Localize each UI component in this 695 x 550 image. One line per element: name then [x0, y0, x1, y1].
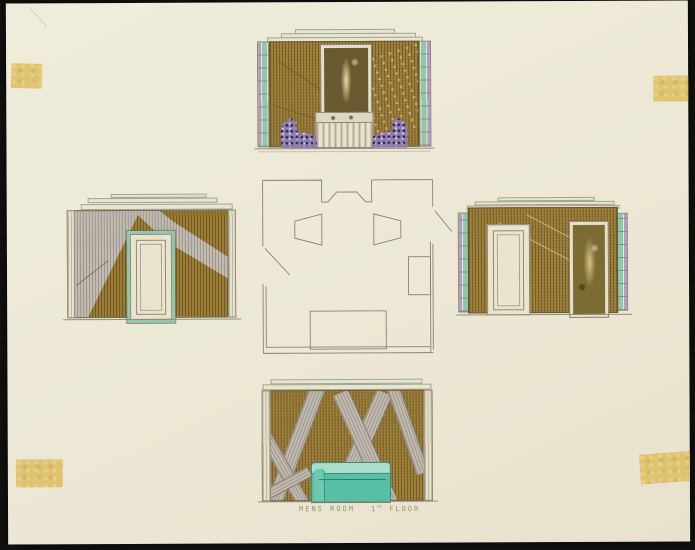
floor-line: [254, 148, 434, 150]
plan-sofa: [310, 311, 386, 349]
edge-strip-right: [424, 390, 433, 501]
caption-floor: 1ST FLOOR: [371, 504, 420, 514]
caption: MENS ROOM 1ST FLOOR: [299, 504, 420, 514]
plan-armchair-left: [295, 214, 322, 245]
console-figurines: [316, 113, 372, 123]
pilaster-right: [419, 41, 431, 147]
floor-line: [258, 151, 430, 153]
plan-bottom-wall: [263, 347, 433, 354]
cornice-step: [88, 198, 218, 204]
plan-armchair-right: [374, 214, 401, 245]
door-panel: [140, 244, 162, 311]
east-door: [487, 224, 530, 315]
plan-left-wall: [263, 180, 291, 353]
plan-top-wall: [263, 180, 433, 203]
floor-line: [63, 318, 241, 320]
edge-strip-left: [262, 390, 271, 501]
door-panel: [497, 234, 520, 306]
wall-mirror: [321, 45, 371, 122]
sofa: [311, 462, 391, 503]
console: [315, 112, 373, 148]
photo-backdrop: MENS ROOM 1ST FLOOR: [0, 0, 695, 550]
wall-band: [385, 390, 429, 476]
plan-cabinet: [408, 257, 430, 295]
edge-strip-right: [228, 209, 236, 317]
west-door: [130, 234, 172, 320]
tape-bottom-left: [16, 459, 63, 487]
caption-room: MENS ROOM: [299, 505, 355, 513]
sofa-arm: [314, 469, 325, 502]
east-mirror: [570, 222, 608, 317]
edge-strip-left: [67, 210, 75, 318]
paper-crease: [29, 7, 47, 27]
pencil-line: [76, 260, 108, 286]
drawing-sheet: MENS ROOM 1ST FLOOR: [6, 1, 690, 545]
pilaster-left: [257, 41, 269, 147]
tape-bottom-right: [639, 451, 690, 485]
tape-top-left: [11, 63, 43, 89]
plan-right-door: [433, 180, 452, 232]
pilaster-right: [617, 213, 628, 311]
sofa-seat-line: [319, 479, 386, 480]
floor-plan: [256, 170, 461, 371]
tape-top-right: [653, 76, 689, 102]
